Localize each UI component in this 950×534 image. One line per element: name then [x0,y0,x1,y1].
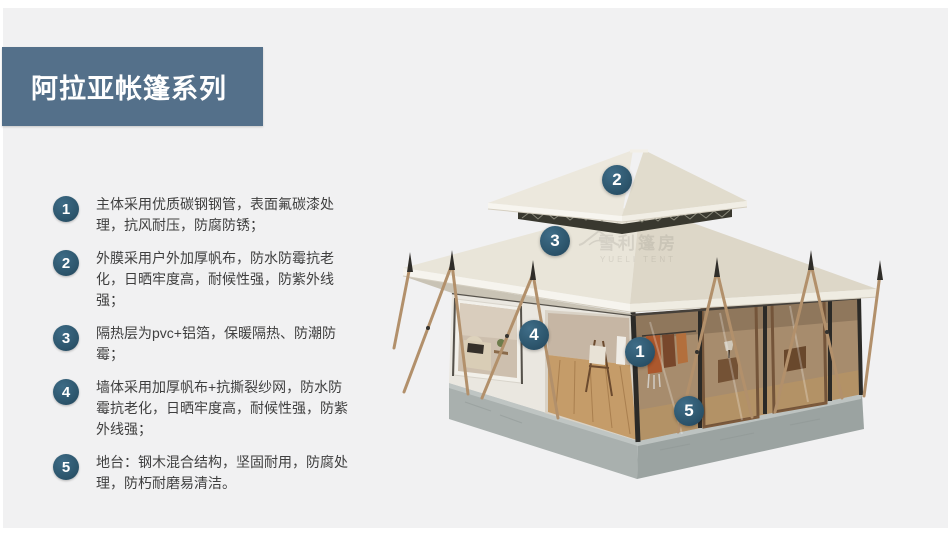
feature-list: 1 主体采用优质碳钢钢管，表面氟碳漆处理，抗风耐压，防腐防锈； 2 外膜采用户外… [53,194,359,506]
feature-number-badge: 2 [53,250,79,276]
tent-drawing [390,140,935,500]
feature-number-badge: 4 [53,379,79,405]
tent-illustration: 雪利篷房 YUELI TENT 2 3 4 1 5 [390,140,935,500]
callout-3: 3 [540,226,570,256]
feature-text: 隔热层为pvc+铝箔，保暖隔热、防潮防霉； [96,323,348,365]
callout-2: 2 [602,165,632,195]
feature-text: 主体采用优质碳钢钢管，表面氟碳漆处理，抗风耐压，防腐防锈； [96,194,348,236]
feature-number-badge: 1 [53,196,79,222]
feature-number-badge: 3 [53,325,79,351]
feature-text: 地台：钢木混合结构，坚固耐用，防腐处理，防朽耐磨易清洁。 [96,452,348,494]
callout-4: 4 [519,320,549,350]
feature-item-2: 2 外膜采用户外加厚帆布，防水防霉抗老化，日晒牢度高，耐候性强，防紫外线强； [53,248,359,311]
feature-text: 墙体采用加厚帆布+抗撕裂纱网，防水防霉抗老化，日晒牢度高，耐候性强，防紫外线强； [96,377,348,440]
feature-item-4: 4 墙体采用加厚帆布+抗撕裂纱网，防水防霉抗老化，日晒牢度高，耐候性强，防紫外线… [53,377,359,440]
feature-item-3: 3 隔热层为pvc+铝箔，保暖隔热、防潮防霉； [53,323,359,365]
page-title: 阿拉亚帐篷系列 [2,67,227,106]
feature-number-badge: 5 [53,454,79,480]
slide-canvas: 阿拉亚帐篷系列 1 主体采用优质碳钢钢管，表面氟碳漆处理，抗风耐压，防腐防锈； … [3,8,948,528]
title-banner: 阿拉亚帐篷系列 [2,47,263,126]
feature-item-5: 5 地台：钢木混合结构，坚固耐用，防腐处理，防朽耐磨易清洁。 [53,452,359,494]
feature-item-1: 1 主体采用优质碳钢钢管，表面氟碳漆处理，抗风耐压，防腐防锈； [53,194,359,236]
callout-1: 1 [625,337,655,367]
callout-5: 5 [674,396,704,426]
feature-text: 外膜采用户外加厚帆布，防水防霉抗老化，日晒牢度高，耐候性强，防紫外线强； [96,248,348,311]
